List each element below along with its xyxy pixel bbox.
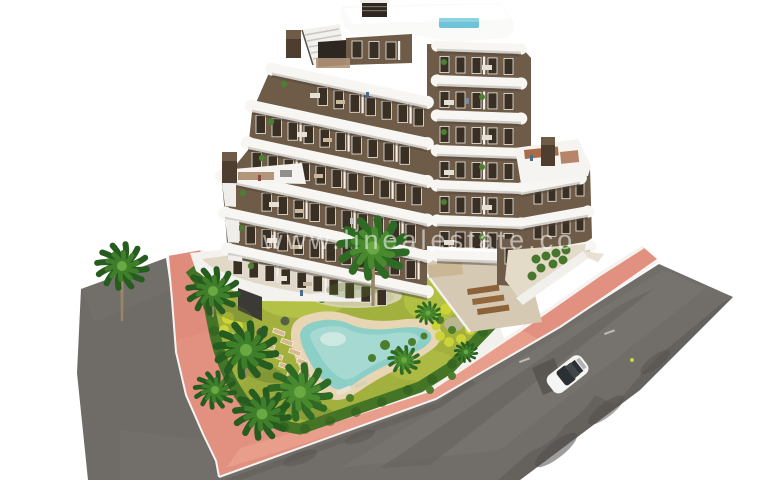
svg-text:www.li​nealestate.co: www.li​nealestate.co	[262, 225, 576, 255]
